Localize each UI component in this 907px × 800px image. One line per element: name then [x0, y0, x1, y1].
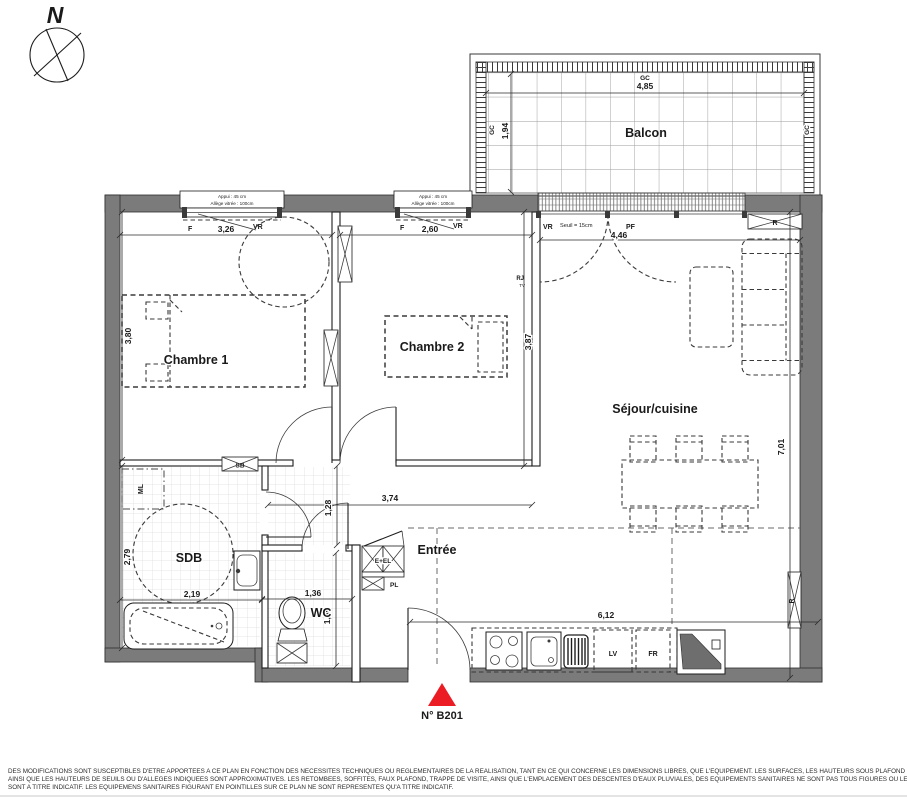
washbasin: [234, 551, 260, 590]
window2-vr-label: VR: [453, 223, 463, 230]
bay-door-swing-right: [608, 214, 676, 282]
disclaimer-line3: SONT A TITRE INDICATIF. LES EQUIPEMENS S…: [8, 784, 454, 791]
unit-number: N° B201: [421, 710, 463, 722]
dim-sdb-depth: 2,79: [122, 548, 132, 565]
dim-sdb-width: 2,19: [184, 589, 201, 599]
wall-c2-right: [532, 212, 540, 466]
wall-bottom-mid: [262, 668, 408, 682]
entree-closet: E+EL PL: [362, 531, 404, 590]
wall-bottom-left: [105, 648, 268, 662]
dim-chambre2-width: 2,60: [422, 224, 439, 234]
bay-pf-label: PF: [626, 224, 636, 231]
wc-label: WC: [311, 606, 332, 620]
wall-sdb-wc-divider: [262, 535, 268, 668]
dishwasher-label: LV: [609, 651, 618, 658]
wc-fixtures: [277, 597, 307, 663]
chambre1-label: Chambre 1: [164, 353, 229, 367]
sofa: [742, 239, 802, 375]
entrance-arrow-icon: [428, 683, 456, 706]
disclaimer-line2: AINSI QUE LES HAUTEURS DE SEUILS OU D'AL…: [8, 776, 907, 783]
door-chambre1: [276, 407, 332, 463]
pillow: [478, 322, 503, 372]
balcony-room-label: Balcon: [625, 126, 667, 140]
wall-bottom-right: [470, 668, 822, 682]
coffee-table: [690, 267, 733, 347]
balcony-gc-left-label: GC: [489, 125, 496, 135]
balcony-gc-right-label: GC: [804, 125, 811, 135]
pillow: [146, 302, 168, 319]
entree-label: Entrée: [418, 543, 457, 557]
dining-chairs: [630, 436, 748, 532]
window2-appui-label: Appui : 45 cm: [419, 194, 447, 199]
wall-c1-bottom: [120, 460, 293, 466]
window2-f-label: F: [400, 225, 405, 232]
floor-plan-page: N GC 4,85 GC 1,94 GC Balcon: [0, 0, 907, 800]
balcony-gc-top-dim: 4,85: [637, 81, 654, 91]
wall-top-3: [470, 195, 538, 212]
wall-right: [800, 195, 822, 682]
sejour-label: Séjour/cuisine: [612, 402, 697, 416]
dim-wc-width: 1,36: [305, 588, 322, 598]
dim-sejour-width: 4,46: [611, 230, 628, 240]
towel-radiator-label: SB: [235, 463, 244, 470]
dim-chambre1-depth: 3,80: [123, 327, 133, 344]
balcony-gc-left-dim: 1,94: [500, 122, 510, 139]
toilet-tank: [278, 629, 307, 641]
balcony: GC 4,85 GC 1,94 GC Balcon: [470, 54, 820, 196]
bay-seuil-label: Seuil = 15cm: [560, 223, 593, 229]
door-entrance: [408, 608, 470, 670]
turning-circle-chambre1: [239, 217, 329, 307]
fridge-label: FR: [648, 651, 657, 658]
bay-vr-label: VR: [543, 224, 553, 231]
bay-window: VR Seuil = 15cm PF: [536, 193, 747, 282]
window1-allege-label: Allège vitrée : 100cm: [211, 201, 254, 206]
rj-socket-label: RJ: [516, 276, 524, 282]
wall-left: [105, 195, 120, 662]
floor-plan-canvas: N GC 4,85 GC 1,94 GC Balcon: [0, 0, 907, 800]
balcony-railing-top: [476, 62, 814, 72]
wall-entree-left: [352, 545, 360, 682]
chambre2-label: Chambre 2: [400, 340, 465, 354]
dim-kitchen-length: 6,12: [598, 610, 615, 620]
wall-hall-bottom-left: [262, 545, 302, 551]
disclaimer: DES MODIFICATIONS SONT SUSCEPTIBLES D'ET…: [0, 768, 907, 796]
dim-chambre1-width: 3,26: [218, 224, 235, 234]
wall-top-2: [281, 195, 396, 212]
north-compass-icon: N: [30, 2, 84, 82]
balcony-railing-left: [476, 62, 486, 193]
bathtub: [124, 603, 233, 649]
chambre1-furniture: [122, 217, 338, 387]
north-label: N: [47, 2, 64, 28]
window2-allege-label: Allège vitrée : 100cm: [412, 201, 455, 206]
soffit-lines: [408, 528, 800, 668]
entrance-marker: N° B201: [421, 683, 463, 722]
chambre2-furniture: RJ TV: [338, 226, 525, 377]
washing-machine-label: ML: [138, 483, 145, 494]
window1-appui-label: Appui : 45 cm: [218, 194, 246, 199]
door-chambre2: [340, 407, 396, 463]
dim-chambre2-depth: 3,87: [523, 333, 533, 350]
hall-floor: [268, 467, 350, 545]
bed-double: [122, 295, 305, 387]
technical-shaft: [677, 630, 725, 674]
towel-radiator: SB: [222, 457, 258, 471]
utility-closet-label: E+EL: [375, 558, 391, 565]
dining-table: [622, 460, 758, 508]
wall-c2-bottom: [396, 460, 532, 466]
kitchen-counter: LV FR: [472, 628, 725, 674]
dim-hall-width: 1,28: [323, 499, 333, 516]
wall-sdb-right-top: [262, 466, 268, 490]
sdb-label: SDB: [176, 551, 202, 565]
bay-sill: [538, 193, 745, 211]
closet-pl-label: PL: [390, 582, 398, 589]
radiator-label: R: [772, 220, 777, 227]
window1-f-label: F: [188, 226, 193, 233]
dim-hall-length: 3,74: [382, 493, 399, 503]
disclaimer-line1: DES MODIFICATIONS SONT SUSCEPTIBLES D'ET…: [8, 768, 906, 775]
dim-sejour-depth: 7,01: [776, 438, 786, 455]
